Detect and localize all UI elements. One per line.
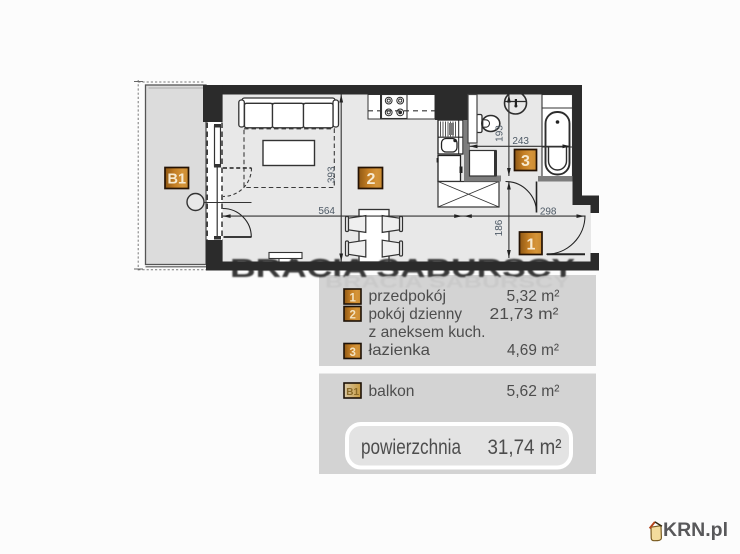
svg-text:3: 3 [521,153,530,170]
svg-text:4,69 m²: 4,69 m² [507,342,560,359]
svg-text:193: 193 [495,125,506,142]
svg-text:przedpokój: przedpokój [369,288,447,305]
svg-text:298: 298 [540,207,557,218]
svg-text:pokój dzienny: pokój dzienny [369,306,463,323]
svg-text:KRN.pl: KRN.pl [663,520,728,541]
svg-text:z aneksem kuch.: z aneksem kuch. [369,324,486,341]
svg-text:balkon: balkon [369,383,415,400]
svg-text:21,73 m²: 21,73 m² [490,306,560,323]
svg-text:1: 1 [527,237,536,254]
svg-text:564: 564 [318,206,335,217]
svg-text:łazienka: łazienka [369,342,431,359]
svg-text:186: 186 [494,219,505,236]
svg-text:5,32 m²: 5,32 m² [507,288,561,305]
svg-text:1: 1 [349,293,356,305]
svg-text:243: 243 [512,136,529,147]
svg-text:B1: B1 [346,387,359,398]
svg-text:B1: B1 [168,172,187,188]
svg-text:2: 2 [367,171,376,188]
svg-text:3: 3 [349,347,355,359]
svg-text:powierzchnia: powierzchnia [361,436,461,459]
svg-text:31,74 m²: 31,74 m² [488,436,562,459]
svg-text:393: 393 [327,166,338,183]
svg-text:2: 2 [349,310,355,322]
svg-text:5,62 m²: 5,62 m² [507,383,561,400]
